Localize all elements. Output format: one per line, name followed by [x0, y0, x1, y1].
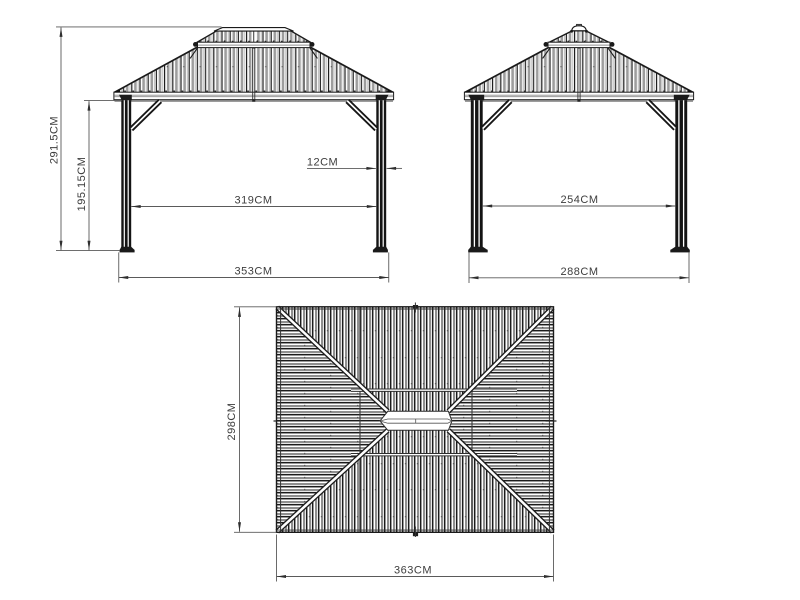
svg-text:353CM: 353CM — [235, 266, 273, 278]
svg-text:319CM: 319CM — [235, 195, 273, 207]
svg-text:254CM: 254CM — [561, 194, 599, 206]
svg-text:298CM: 298CM — [226, 403, 238, 441]
svg-text:291.5CM: 291.5CM — [49, 116, 61, 164]
svg-text:195.15CM: 195.15CM — [76, 157, 88, 212]
svg-text:288CM: 288CM — [561, 266, 599, 278]
svg-text:12CM: 12CM — [307, 156, 338, 168]
svg-text:363CM: 363CM — [394, 565, 432, 577]
